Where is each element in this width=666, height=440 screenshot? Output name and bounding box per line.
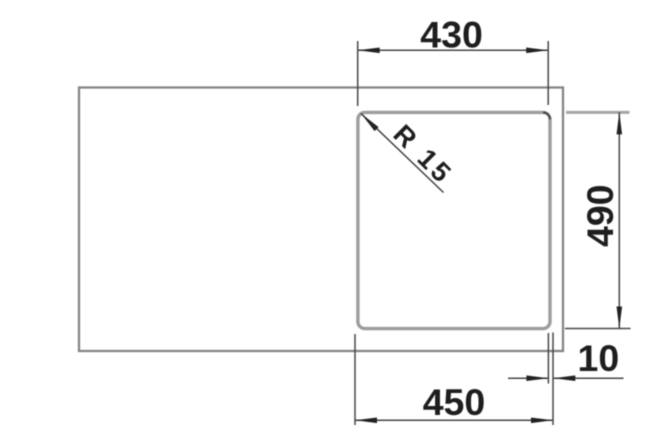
svg-text:430: 430 (420, 13, 483, 55)
svg-text:450: 450 (423, 381, 486, 423)
svg-text:10: 10 (578, 337, 620, 379)
svg-text:R 15: R 15 (388, 119, 459, 190)
svg-text:490: 490 (579, 184, 621, 247)
